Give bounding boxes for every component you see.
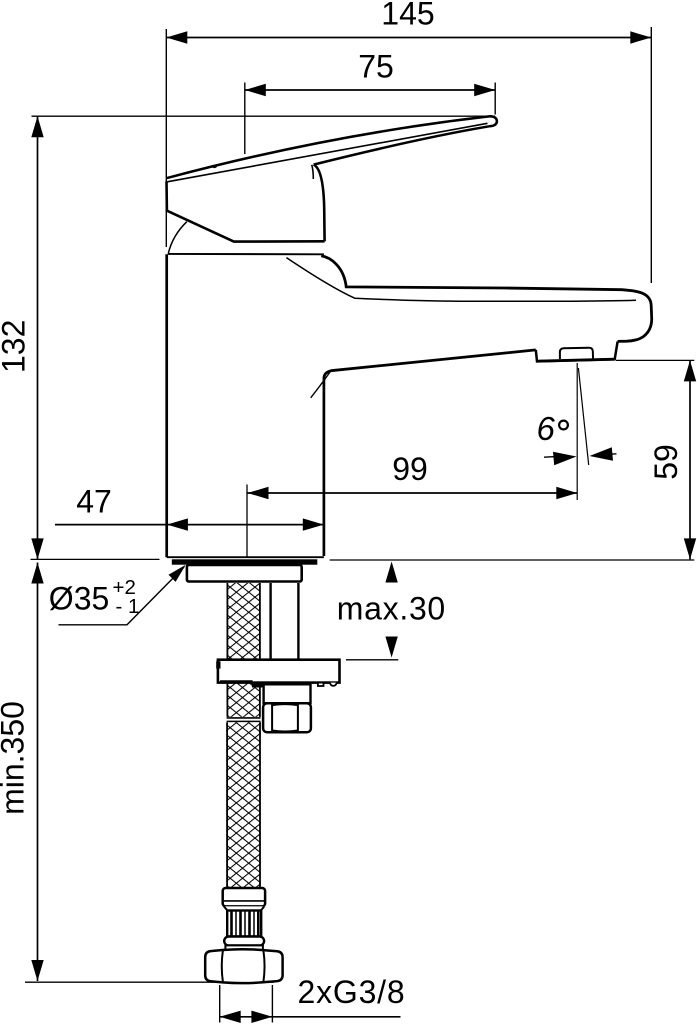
- svg-text:59: 59: [648, 444, 684, 480]
- svg-text:Ø35: Ø35: [49, 581, 109, 617]
- svg-text:6: 6: [537, 410, 556, 447]
- svg-text:145: 145: [381, 0, 434, 32]
- svg-text:47: 47: [76, 483, 112, 519]
- svg-text:2xG3/8: 2xG3/8: [298, 974, 406, 1010]
- svg-text:132: 132: [0, 320, 31, 373]
- svg-text:min.350: min.350: [0, 701, 30, 815]
- svg-text:75: 75: [358, 49, 394, 85]
- svg-text:99: 99: [392, 451, 428, 487]
- svg-text:max.30: max.30: [337, 591, 446, 627]
- svg-text:- 1: - 1: [116, 595, 140, 618]
